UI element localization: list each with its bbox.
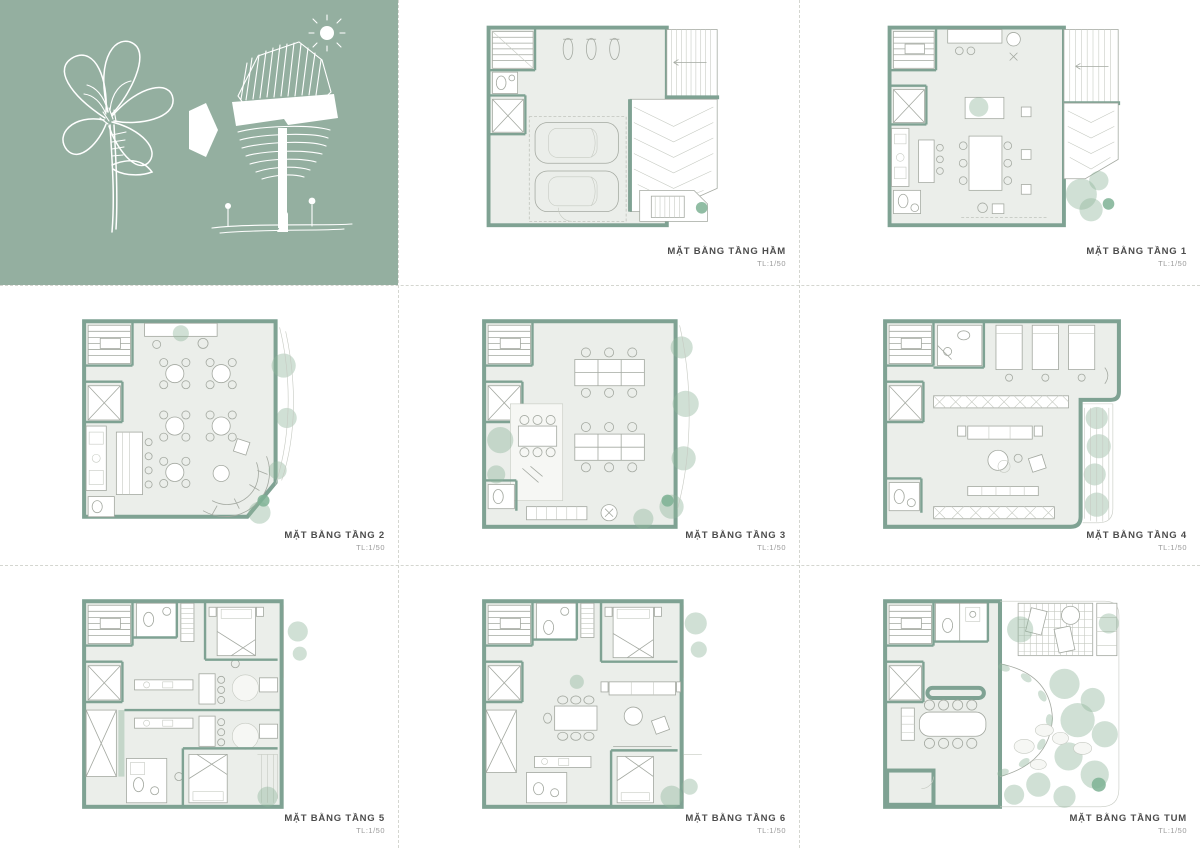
stair-core — [885, 321, 933, 365]
kitchen-bar — [86, 426, 152, 495]
concept-sketch — [0, 0, 398, 285]
plan-cell-floor-6: MẶT BẰNG TẦNG 6 TL:1/50 — [398, 565, 799, 848]
cabinet-row — [933, 396, 1068, 408]
light-well — [86, 710, 124, 777]
plan-cell-floor-4: MẶT BẰNG TẦNG 4 TL:1/50 — [799, 285, 1200, 565]
wc — [484, 480, 516, 510]
plan-title: MẶT BẰNG TẦNG 5 — [284, 813, 385, 826]
floorplan-floor-2 — [70, 307, 328, 535]
ramp-strip — [1063, 30, 1119, 104]
floorplan-floor-3 — [470, 307, 728, 535]
wc — [933, 601, 987, 641]
plan-cell-floor-5: MẶT BẰNG TẦNG 5 TL:1/50 — [0, 565, 398, 848]
plan-scale: TL:1/50 — [667, 259, 786, 269]
stair-core — [889, 28, 936, 71]
plan-title: MẶT BẰNG TẦNG 6 — [685, 813, 786, 826]
wc — [893, 190, 920, 213]
elevator — [484, 662, 522, 702]
plan-cell-roof: MẶT BẰNG TẦNG TUM TL:1/50 — [799, 565, 1200, 848]
tv-cabinet — [967, 487, 1038, 496]
terrace-chevrons — [1063, 103, 1117, 179]
concept-panel — [0, 0, 398, 285]
wc — [885, 478, 921, 512]
floorplan-floor-5 — [70, 587, 328, 815]
bike-lift-vestibule — [639, 190, 707, 221]
meeting-area — [510, 404, 562, 501]
elevator — [84, 382, 122, 422]
wc — [492, 72, 517, 93]
person-figure — [225, 198, 315, 226]
floorplan-floor-6 — [470, 587, 728, 815]
elevator — [488, 95, 525, 134]
stair-core — [484, 321, 532, 365]
bathroom — [532, 601, 576, 639]
floorplan-floor-1 — [876, 14, 1124, 233]
plan-cell-floor-1: MẶT BẰNG TẦNG 1 TL:1/50 — [799, 0, 1200, 285]
bathroom — [126, 758, 166, 802]
plan-title: MẶT BẰNG TẦNG 1 — [1086, 246, 1187, 259]
plan-title: MẶT BẰNG TẦNG TUM — [1069, 813, 1187, 826]
floorplan-basement — [475, 14, 723, 233]
plan-scale: TL:1/50 — [685, 543, 786, 553]
plan-scale: TL:1/50 — [284, 826, 385, 836]
plan-cell-floor-3: MẶT BẰNG TẦNG 3 TL:1/50 — [398, 285, 799, 565]
kitchen-counter — [534, 756, 590, 767]
lily-flower-sketch — [63, 41, 173, 232]
ramp-entry — [664, 30, 718, 98]
arrow-icon — [189, 103, 218, 157]
floorplan-roof — [871, 587, 1129, 815]
bathroom — [526, 773, 566, 803]
elevator — [885, 662, 923, 702]
stair-core — [885, 601, 933, 645]
stair-core — [484, 601, 532, 645]
plan-cell-basement: MẶT BẰNG TẦNG HẦM TL:1/50 — [398, 0, 799, 285]
elevator — [885, 382, 923, 422]
floor-plan-sheet: MẶT BẰNG TẦNG HẦM TL:1/50 — [0, 0, 1200, 848]
plan-scale: TL:1/50 — [1086, 259, 1187, 269]
elevator — [889, 86, 926, 125]
stair-core — [488, 28, 535, 71]
stair-core — [84, 321, 132, 365]
plan-cell-floor-2: MẶT BẰNG TẦNG 2 TL:1/50 — [0, 285, 398, 565]
light-well — [486, 710, 516, 772]
sun-icon — [309, 15, 345, 51]
laundry-hatch — [181, 603, 194, 641]
balcony-garden — [1082, 404, 1112, 523]
plan-scale: TL:1/50 — [685, 826, 786, 836]
plan-scale: TL:1/50 — [284, 543, 385, 553]
edge-plants — [996, 662, 1053, 778]
storage-room — [887, 771, 933, 805]
cabinet-row — [933, 507, 1054, 519]
plan-title: MẶT BẰNG TẦNG 3 — [685, 530, 786, 543]
island-planter — [965, 97, 1004, 118]
bathroom — [933, 321, 983, 367]
elevator — [84, 662, 122, 702]
tree-house-concept-sketch — [212, 42, 352, 233]
plan-scale: TL:1/50 — [1069, 826, 1187, 836]
stair-core — [84, 601, 132, 645]
laundry-hatch — [580, 603, 593, 637]
wc — [88, 497, 114, 517]
pantry-counter — [526, 505, 617, 521]
floorplan-floor-4 — [871, 307, 1129, 535]
plan-scale: TL:1/50 — [1086, 543, 1187, 553]
bathroom — [132, 601, 176, 637]
plan-title: MẶT BẰNG TẦNG 2 — [284, 530, 385, 543]
plan-title: MẶT BẰNG TẦNG 4 — [1086, 530, 1187, 543]
plan-title: MẶT BẰNG TẦNG HẦM — [667, 246, 786, 259]
